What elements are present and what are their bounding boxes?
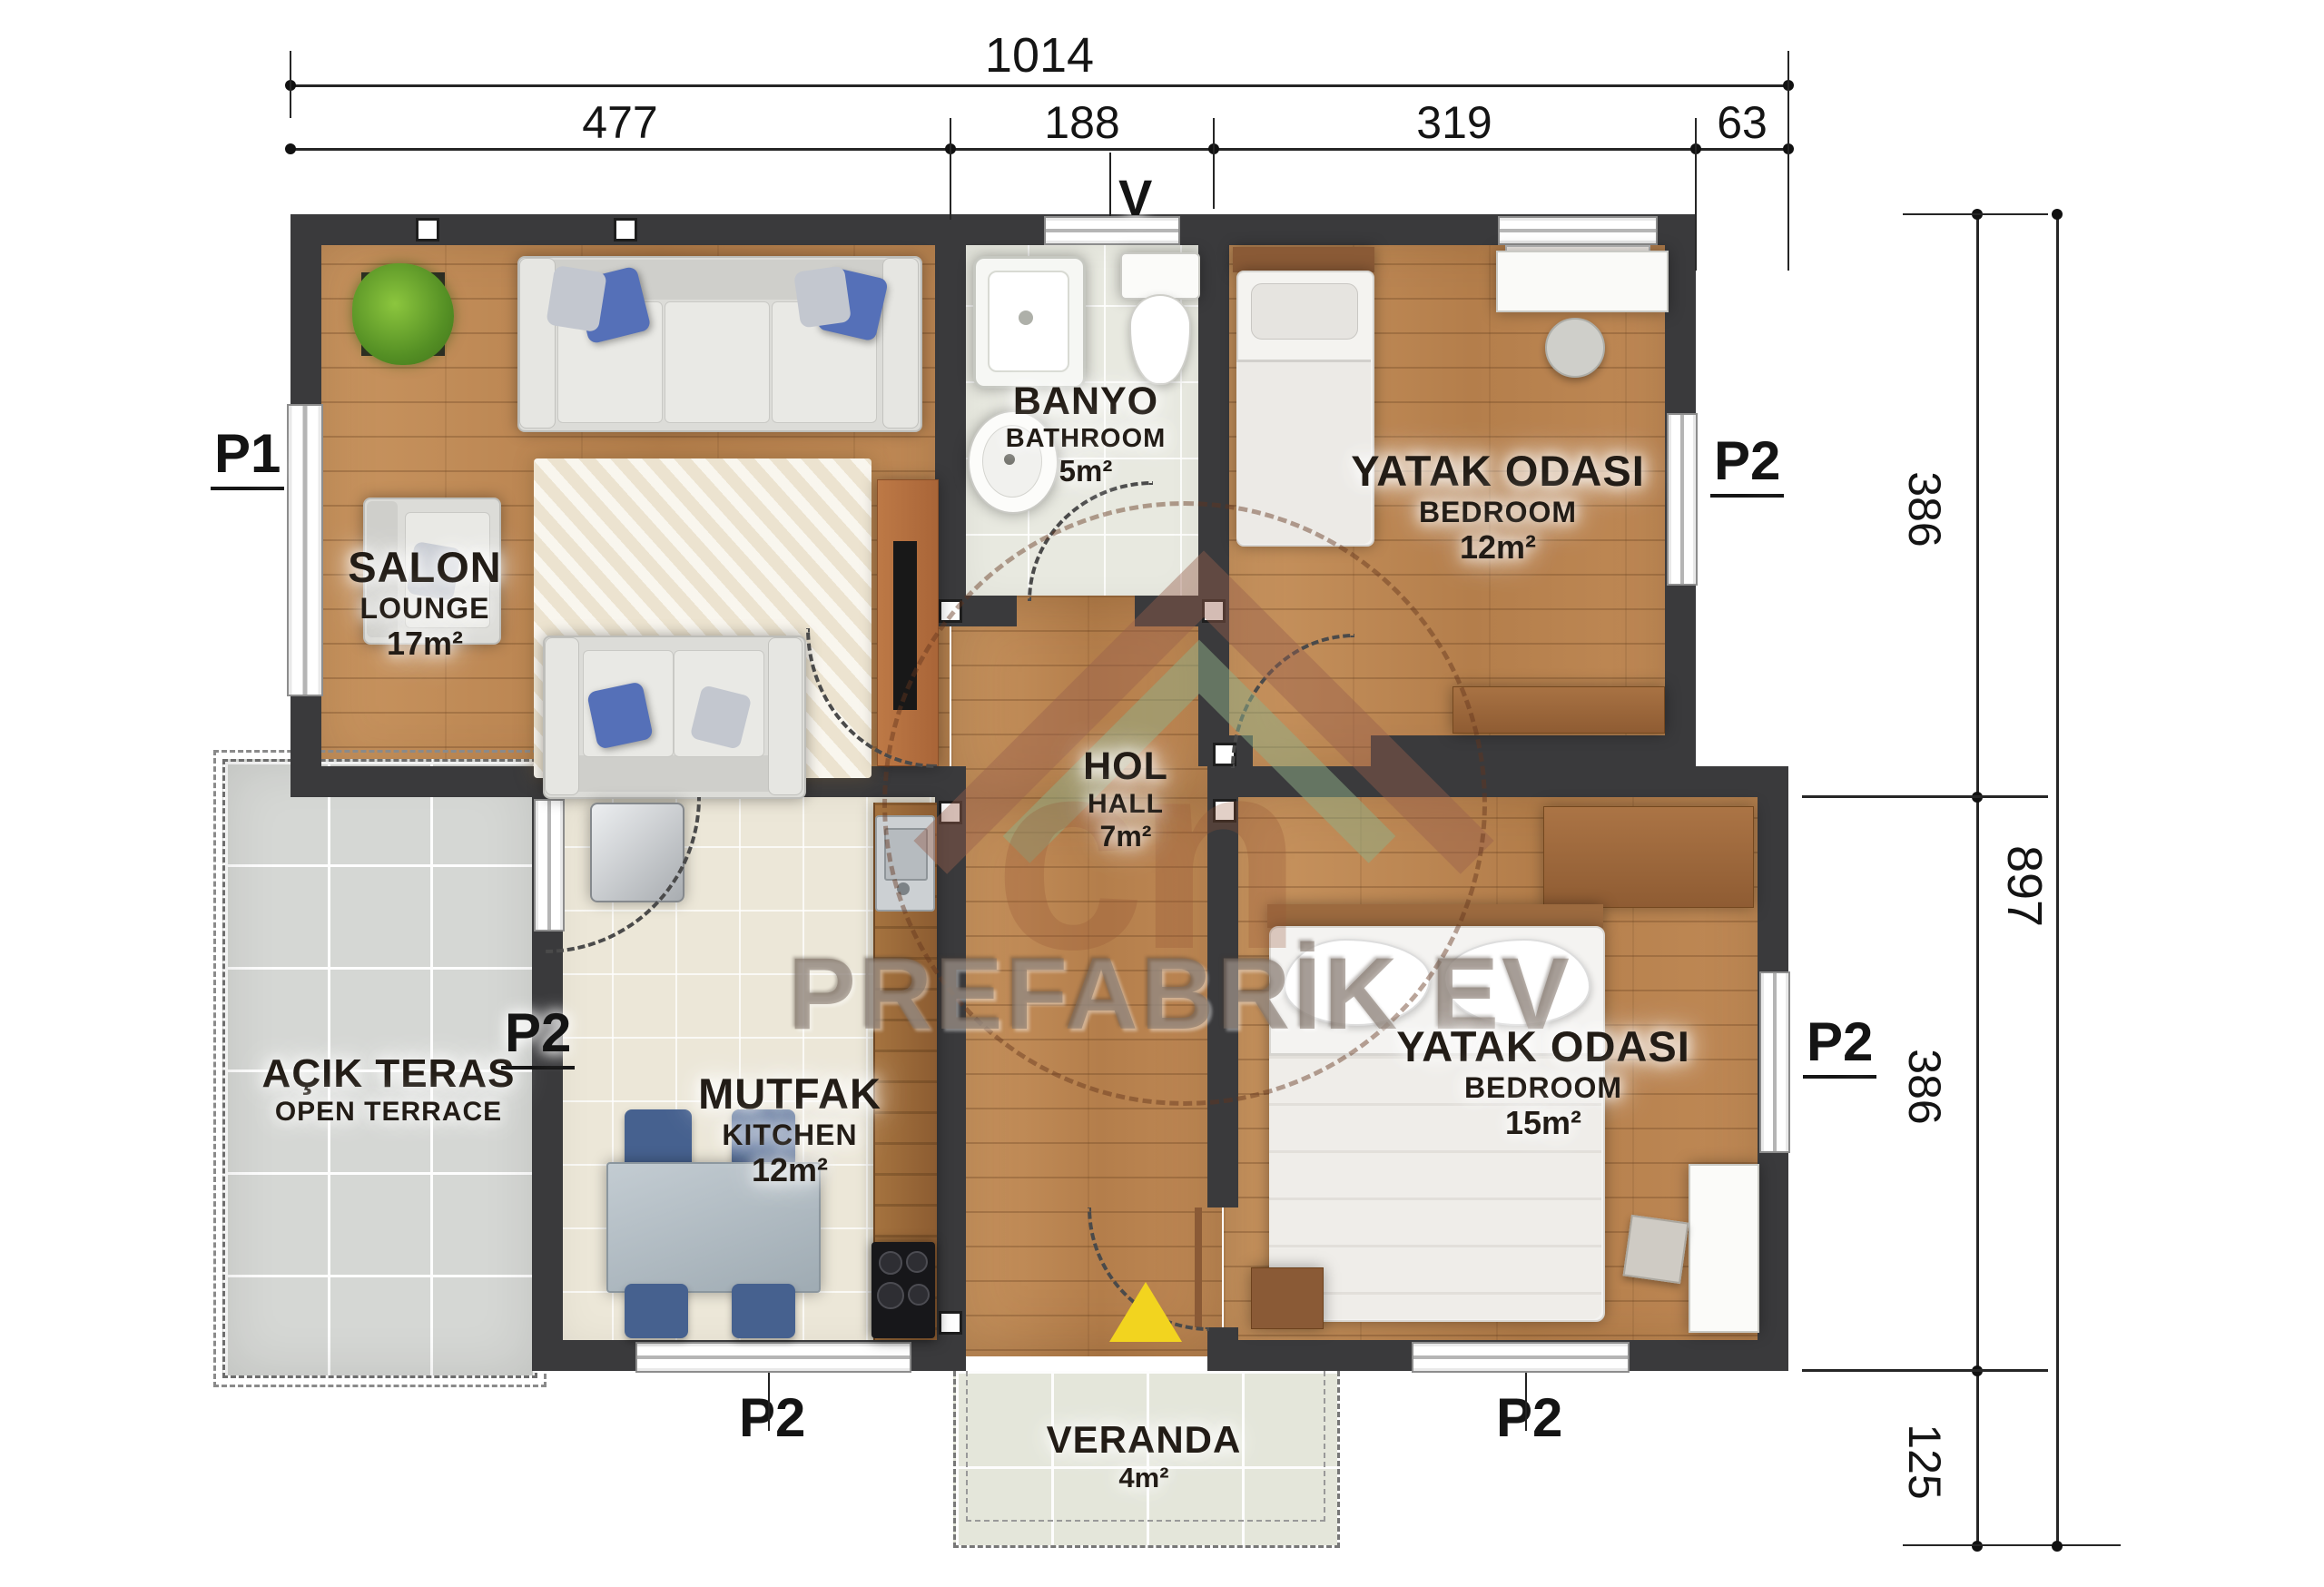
sofa-large-armrest-right — [882, 258, 919, 429]
dim-dot — [285, 143, 296, 154]
bed1-pillow — [1251, 283, 1358, 340]
dim-dot — [2052, 1541, 2063, 1552]
dim-ext — [1802, 795, 2048, 798]
marker-v-vent: V — [1115, 172, 1156, 229]
bedroom2-bottom-window — [1412, 1342, 1630, 1373]
toilet-tank — [1120, 252, 1200, 300]
dining-chair — [625, 1284, 688, 1338]
pillow-gray — [546, 265, 607, 332]
bed1-headboard — [1233, 247, 1374, 272]
veranda-area: 4m² — [990, 1462, 1298, 1493]
dim-top-seg4: 63 — [1697, 96, 1787, 149]
dim-ext — [1695, 118, 1697, 271]
kitchen-area: 12m² — [652, 1151, 928, 1188]
bathroom-label: BANYO BATHROOM 5m² — [973, 379, 1198, 488]
dim-ext — [1787, 51, 1789, 118]
dim-ext — [1787, 118, 1789, 271]
panel-joint — [939, 801, 962, 824]
dim-top-seg2: 188 — [991, 96, 1173, 149]
dim-right-overall: 897 — [1996, 813, 2053, 959]
salon-label: SALON LOUNGE 17m² — [289, 543, 561, 662]
bedroom1-label: YATAK ODASI BEDROOM 12m² — [1342, 447, 1654, 566]
dim-dot — [2052, 209, 2063, 220]
bathroom-area: 5m² — [973, 454, 1198, 488]
stove-burner — [877, 1282, 904, 1309]
salon-area: 17m² — [289, 625, 561, 662]
floor-plan: cn PREFABRİK EV SALON LOUNGE 17m² BANYO … — [0, 0, 2324, 1587]
veranda-name: VERANDA — [990, 1418, 1298, 1462]
bedroom1-name-en: BEDROOM — [1342, 496, 1654, 528]
bedroom2-side-table — [1251, 1267, 1324, 1329]
wall-bedroom2-left-top — [1207, 797, 1238, 1207]
sofa-small-backrest — [547, 755, 799, 792]
shower-drain — [1019, 310, 1033, 325]
bedroom1-desk — [1496, 251, 1669, 312]
dim-right-seg1: 386 — [1898, 437, 1951, 582]
marker-p2-bedroom2-right: P2 — [1803, 1015, 1876, 1079]
hall-name-tr: HOL — [1031, 744, 1220, 789]
bedroom1-stool — [1545, 318, 1605, 378]
dim-line — [290, 84, 1788, 87]
entrance-arrow-icon — [1109, 1282, 1182, 1342]
stove-burner — [908, 1284, 930, 1306]
panel-joint — [614, 218, 637, 241]
dim-dot — [1972, 1541, 1983, 1552]
bed2-headboard — [1267, 904, 1603, 928]
bedroom2-name-tr: YATAK ODASI — [1387, 1022, 1699, 1071]
kitchen-faucet — [897, 882, 910, 895]
panel-joint — [416, 218, 439, 241]
bedroom1-area: 12m² — [1342, 528, 1654, 566]
kitchen-sink-basin — [884, 828, 928, 881]
dim-ext — [950, 118, 951, 220]
bathroom-name-tr: BANYO — [973, 379, 1198, 424]
dim-line — [1976, 214, 1979, 1546]
salon-name-en: LOUNGE — [289, 592, 561, 625]
marker-p2-kitchen-leader — [768, 1373, 770, 1431]
marker-p2-kitchen: P2 — [735, 1391, 809, 1451]
hall-name-en: HALL — [1031, 789, 1220, 820]
dim-ext — [290, 51, 291, 118]
dim-ext — [1802, 1369, 2048, 1372]
marker-p2-terrace: P2 — [501, 1006, 575, 1069]
dim-top-overall: 1014 — [949, 27, 1130, 84]
bedroom2-right-window — [1759, 971, 1790, 1153]
bedroom2-dresser — [1543, 806, 1754, 908]
stove-burner — [879, 1251, 902, 1275]
panel-joint — [939, 599, 962, 623]
stove-burner — [906, 1251, 928, 1273]
marker-p2-bedroom1: P2 — [1710, 434, 1784, 498]
dim-line — [2056, 214, 2059, 1546]
bathroom-name-en: BATHROOM — [973, 424, 1198, 454]
bedroom1-top-window — [1498, 216, 1658, 245]
dim-line — [290, 148, 1788, 151]
salon-name-tr: SALON — [289, 543, 561, 592]
wall-kitchen-corridor — [935, 797, 966, 1371]
panel-joint — [1202, 599, 1226, 623]
bedroom2-label: YATAK ODASI BEDROOM 15m² — [1387, 1022, 1699, 1141]
kitchen-name-tr: MUTFAK — [652, 1069, 928, 1119]
sofa-small-armrest-right — [768, 637, 803, 795]
panel-joint — [939, 1311, 962, 1335]
marker-p2-bedroom2-bottom: P2 — [1492, 1391, 1566, 1451]
terrace-name-en: OPEN TERRACE — [227, 1097, 550, 1128]
dim-right-seg2: 386 — [1898, 1014, 1951, 1159]
bathroom-vent-window — [1044, 216, 1180, 245]
wall-salon-bottom-left — [290, 766, 545, 797]
dim-ext — [1903, 213, 2048, 215]
bedroom1-right-window — [1667, 413, 1698, 586]
wall-top — [290, 214, 1696, 245]
bedroom1-dresser — [1452, 686, 1665, 734]
dim-ext — [1213, 118, 1215, 209]
dim-top-seg3: 319 — [1364, 96, 1545, 149]
marker-p2-bedroom2-bottom-leader — [1525, 1373, 1527, 1431]
hall-area: 7m² — [1031, 820, 1220, 853]
pillow-blue — [586, 681, 654, 749]
bedroom2-area: 15m² — [1387, 1104, 1699, 1141]
veranda-label: VERANDA 4m² — [990, 1418, 1298, 1493]
sofa-cushion — [665, 301, 770, 423]
dining-chair — [732, 1284, 795, 1338]
hall-label: HOL HALL 7m² — [1031, 744, 1220, 853]
dim-ext — [1903, 1544, 2121, 1546]
bedroom2-name-en: BEDROOM — [1387, 1071, 1699, 1104]
pillow-gray — [793, 265, 852, 328]
bedroom2-vanity — [1689, 1164, 1759, 1333]
bedroom1-name-tr: YATAK ODASI — [1342, 447, 1654, 496]
kitchen-bottom-window — [635, 1342, 911, 1373]
dim-right-seg3: 125 — [1898, 1389, 1951, 1534]
marker-p1-salon: P1 — [211, 427, 284, 490]
marker-v-leader — [1109, 153, 1111, 216]
kitchen-name-en: KITCHEN — [652, 1119, 928, 1151]
kitchen-label: MUTFAK KITCHEN 12m² — [652, 1069, 928, 1188]
dim-top-seg1: 477 — [529, 96, 711, 149]
wall-bathroom-bedroom1 — [1198, 214, 1229, 766]
wall-bedroom1-bottom-right — [1371, 735, 1696, 766]
wall-bedroom2-top — [1207, 766, 1788, 797]
plant-icon — [352, 263, 454, 365]
sofa-large-armrest-left — [519, 258, 556, 429]
wall-salon-bathroom — [935, 214, 966, 626]
bedroom2-stool — [1623, 1215, 1689, 1284]
